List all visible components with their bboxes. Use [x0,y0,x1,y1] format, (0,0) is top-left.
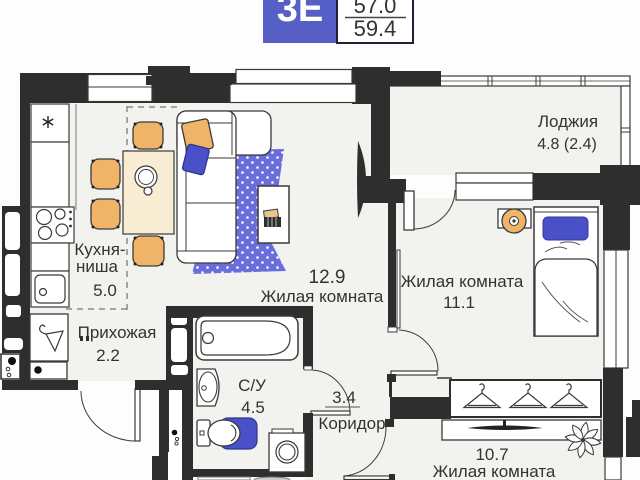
svg-text:ниша: ниша [76,257,119,276]
svg-text:3.4: 3.4 [332,388,356,407]
svg-text:Жилая комната: Жилая комната [261,287,384,306]
svg-text:Прихожая: Прихожая [78,323,157,342]
svg-text:Лоджия: Лоджия [538,112,598,131]
svg-text:4.8 (2.4): 4.8 (2.4) [537,136,597,153]
svg-text:Жилая комната: Жилая комната [401,272,524,291]
svg-text:Жилая комната: Жилая комната [433,462,556,480]
svg-text:11.1: 11.1 [443,293,475,312]
svg-text:3Е: 3Е [277,0,323,30]
svg-text:2.2: 2.2 [96,346,120,365]
svg-text:59.4: 59.4 [354,16,397,41]
svg-text:4.5: 4.5 [241,398,265,417]
svg-text:С/У: С/У [238,376,266,395]
svg-text:12.9: 12.9 [309,267,346,288]
svg-text:5.0: 5.0 [93,281,117,300]
svg-text:Коридор: Коридор [318,414,385,433]
